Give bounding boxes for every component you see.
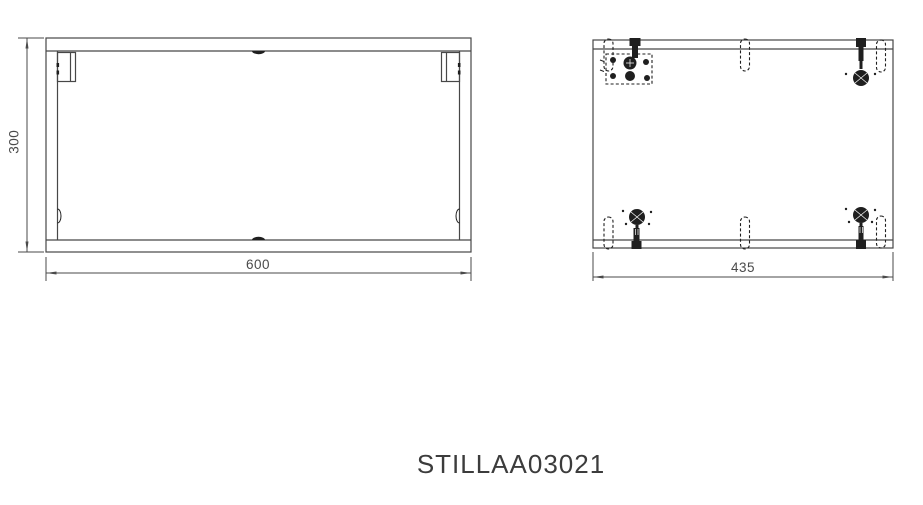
hinge-tick-marks <box>600 60 604 72</box>
front-width-dimension-label: 600 <box>208 258 308 272</box>
tick-dot <box>845 208 847 210</box>
tick-dot <box>874 73 876 75</box>
dowel-pin-shaft <box>634 228 640 241</box>
hinge-screw <box>610 57 616 63</box>
right-bracket-screw <box>458 71 461 75</box>
front-height-dimension-label: 300 <box>7 112 21 172</box>
side-depth-dimension-label: 435 <box>693 261 793 275</box>
drill-slot <box>741 39 750 71</box>
drill-slot <box>604 217 613 249</box>
front-outer-frame <box>46 38 471 252</box>
front-view <box>18 38 471 281</box>
drill-slot <box>604 39 613 71</box>
tick-dot <box>845 73 847 75</box>
side-view <box>593 38 893 281</box>
hinge-screw <box>644 75 650 81</box>
tick-dot <box>871 221 873 223</box>
left-bracket-body <box>58 53 76 82</box>
left-bracket-screw <box>57 71 60 75</box>
drill-slot <box>877 216 886 248</box>
dowel-pin-head <box>630 38 641 46</box>
hinge-mounting-plate <box>600 38 652 84</box>
tick-dot <box>848 221 850 223</box>
drill-slot <box>741 217 750 249</box>
drawing-sheet <box>0 0 923 505</box>
right-bracket-screw <box>458 63 461 67</box>
right-bracket-body <box>442 53 460 82</box>
cam-stem <box>860 61 863 69</box>
left-bracket-screw <box>57 63 60 67</box>
left-hanging-bracket <box>57 53 76 82</box>
dowel-pin-head <box>856 240 866 249</box>
dowel-pin-shaft <box>859 47 864 61</box>
front-height-dimension <box>18 38 44 252</box>
arrowhead-up <box>26 38 29 49</box>
bottom-center-dowel-notch <box>252 237 265 240</box>
dowel-pin-head <box>856 38 866 47</box>
tick-dot <box>648 223 650 225</box>
arrowhead-left <box>593 276 604 279</box>
part-number-label: STILLAA03021 <box>311 450 711 479</box>
arrowhead-left <box>46 272 57 275</box>
arrowhead-down <box>26 242 29 253</box>
bottom-left-fitting <box>622 209 652 249</box>
dowel-pin-head <box>632 241 642 249</box>
hinge-boss <box>625 71 635 81</box>
bottom-right-fitting <box>845 207 876 249</box>
top-center-dowel-notch <box>252 51 265 54</box>
arrowhead-right <box>461 272 472 275</box>
tick-dot <box>874 209 876 211</box>
hinge-screw <box>643 59 649 65</box>
right-hanging-bracket <box>442 53 461 82</box>
tick-dot <box>622 210 624 212</box>
tick-dot <box>650 211 652 213</box>
tick-dot <box>625 223 627 225</box>
drill-slot <box>877 40 886 72</box>
arrowhead-right <box>883 276 894 279</box>
top-right-fitting <box>845 38 876 86</box>
dowel-pin-shaft <box>632 46 638 58</box>
technical-drawing-canvas: 300 600 435 STILLAA03021 <box>0 0 923 505</box>
hinge-screw <box>610 73 616 79</box>
